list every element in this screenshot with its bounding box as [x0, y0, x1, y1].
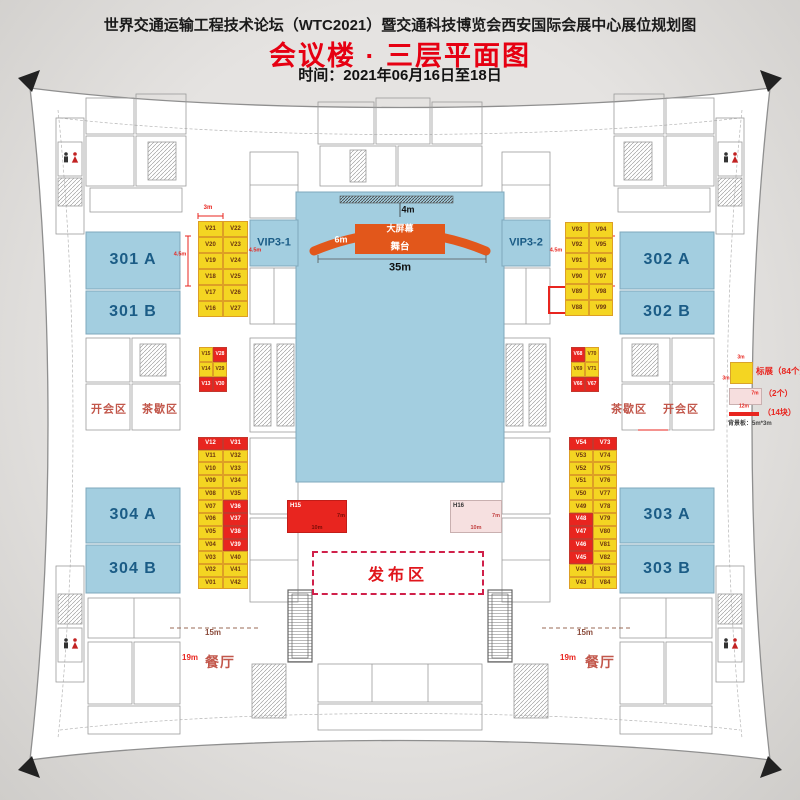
booth-V33: V33 — [223, 462, 248, 475]
booth-V83: V83 — [593, 564, 617, 577]
legend-board-note: 背景板：5m*3m — [728, 421, 772, 427]
legend-special-label: （2个） — [764, 390, 792, 398]
booth-V98: V98 — [589, 284, 613, 300]
booth-V02: V02 — [198, 564, 223, 577]
booth-V42: V42 — [223, 577, 248, 590]
booth-V45: V45 — [569, 551, 593, 564]
booth-grid-mid-right: V68V70V69V71V66V67 — [571, 347, 599, 392]
legend: 3m 3m 标展（84个） 7m 12m （2个） （14块） 背景板：5m*3… — [722, 348, 800, 432]
booth-V82: V82 — [593, 551, 617, 564]
dim-3m-top-left: 3m — [204, 205, 213, 211]
booth-V38: V38 — [223, 526, 248, 539]
legend-standard-label: 标展（84个） — [756, 367, 800, 376]
special-booth-h15: H15 7m 10m — [287, 500, 347, 533]
dim-4m: 4m — [401, 206, 414, 215]
booth-V25: V25 — [223, 269, 248, 285]
booth-V11: V11 — [198, 450, 223, 463]
booth-V44: V44 — [569, 564, 593, 577]
release-area: 发布区 — [312, 551, 484, 595]
booth-V23: V23 — [223, 237, 248, 253]
booth-V34: V34 — [223, 475, 248, 488]
release-area-label: 发布区 — [368, 561, 428, 585]
vip3-1-label: VIP3-1 — [257, 238, 291, 249]
dim-45m-right-corridor: 4.5m — [550, 248, 563, 254]
booth-V40: V40 — [223, 551, 248, 564]
booth-V13: V13 — [199, 377, 213, 392]
booth-V30: V30 — [213, 377, 227, 392]
booth-V32: V32 — [223, 450, 248, 463]
floor-plan-drawing — [0, 0, 800, 800]
dim-6m: 6m — [334, 236, 347, 245]
dim-45m-left-corridor: 4.5m — [249, 248, 262, 254]
room-303a-label: 303 A — [643, 507, 690, 523]
booth-V94: V94 — [589, 222, 613, 238]
tea-zone-label-right: 茶歇区 — [611, 405, 647, 416]
booth-V80: V80 — [593, 526, 617, 539]
booth-V05: V05 — [198, 526, 223, 539]
booth-V20: V20 — [198, 237, 223, 253]
meeting-zone-label-right: 开会区 — [663, 405, 699, 416]
booth-V24: V24 — [223, 253, 248, 269]
booth-V67: V67 — [585, 377, 599, 392]
vip3-2-label: VIP3-2 — [509, 238, 543, 249]
room-303b-label: 303 B — [643, 561, 691, 577]
booth-V01: V01 — [198, 577, 223, 590]
page-title: 世界交通运输工程技术论坛（WTC2021）暨交通科技博览会西安国际会展中心展位规… — [0, 14, 800, 35]
dim-19m-right: 19m — [560, 654, 576, 662]
booth-V14: V14 — [199, 362, 213, 377]
booth-V96: V96 — [589, 253, 613, 269]
booth-V78: V78 — [593, 500, 617, 513]
booth-V43: V43 — [569, 577, 593, 590]
booth-V16: V16 — [198, 301, 223, 317]
booth-V09: V09 — [198, 475, 223, 488]
booth-grid-bottom-right: V54V73V53V74V52V75V51V76V50V77V49V78V48V… — [569, 437, 617, 589]
booth-V71: V71 — [585, 362, 599, 377]
h15-width: 10m — [288, 525, 346, 531]
special-booth-h16: H16 7m 10m — [450, 500, 502, 533]
room-304a-label: 304 A — [109, 507, 156, 523]
booth-V91: V91 — [565, 253, 589, 269]
booth-V12: V12 — [198, 437, 223, 450]
booth-V68: V68 — [571, 347, 585, 362]
booth-V90: V90 — [565, 269, 589, 285]
booth-grid-mid-left: V15V28V14V29V13V30 — [199, 347, 227, 392]
dim-15m-left: 15m — [205, 629, 221, 637]
legend-standard-size-left: 3m — [722, 377, 729, 382]
booth-V47: V47 — [569, 526, 593, 539]
booth-V54: V54 — [569, 437, 593, 450]
booth-V69: V69 — [571, 362, 585, 377]
booth-V95: V95 — [589, 238, 613, 254]
booth-V52: V52 — [569, 462, 593, 475]
legend-standard-size-top: 3m — [737, 356, 744, 361]
tea-zone-label-left: 茶歇区 — [142, 405, 178, 416]
booth-V84: V84 — [593, 577, 617, 590]
legend-board-swatch — [729, 412, 759, 416]
booth-V37: V37 — [223, 513, 248, 526]
booth-V27: V27 — [223, 301, 248, 317]
restaurant-label-right: 餐厅 — [585, 655, 615, 669]
booth-V76: V76 — [593, 475, 617, 488]
booth-V70: V70 — [585, 347, 599, 362]
booth-V51: V51 — [569, 475, 593, 488]
booth-V04: V04 — [198, 539, 223, 552]
time-label: 时间：2021年06月16日至18日 — [0, 64, 800, 85]
booth-V48: V48 — [569, 513, 593, 526]
booth-V89: V89 — [565, 284, 589, 300]
dim-15m-right: 15m — [577, 629, 593, 637]
restaurant-label-left: 餐厅 — [205, 655, 235, 669]
dim-45m-301: 4.5m — [174, 252, 187, 258]
booth-V22: V22 — [223, 221, 248, 237]
booth-V29: V29 — [213, 362, 227, 377]
booth-V46: V46 — [569, 539, 593, 552]
booth-V66: V66 — [571, 377, 585, 392]
booth-V81: V81 — [593, 539, 617, 552]
h15-id: H15 — [290, 503, 301, 509]
booth-V99: V99 — [589, 300, 613, 316]
booth-grid-top-right: V93V94V92V95V91V96V90V97V89V98V88V99 — [565, 222, 613, 316]
booth-V28: V28 — [213, 347, 227, 362]
booth-V10: V10 — [198, 462, 223, 475]
booth-V92: V92 — [565, 238, 589, 254]
booth-V15: V15 — [199, 347, 213, 362]
stage-label: 舞台 — [390, 242, 409, 252]
booth-V41: V41 — [223, 564, 248, 577]
legend-special-w: 12m — [739, 405, 749, 410]
booth-V17: V17 — [198, 285, 223, 301]
legend-standard-swatch — [730, 362, 753, 384]
room-301a-label: 301 A — [109, 252, 156, 268]
booth-V06: V06 — [198, 513, 223, 526]
booth-V50: V50 — [569, 488, 593, 501]
booth-V07: V07 — [198, 500, 223, 513]
booth-V26: V26 — [223, 285, 248, 301]
booth-V74: V74 — [593, 450, 617, 463]
h16-id: H16 — [453, 503, 464, 509]
booth-V49: V49 — [569, 500, 593, 513]
booth-V03: V03 — [198, 551, 223, 564]
h15-height: 7m — [337, 513, 345, 519]
floor-plan-canvas: 世界交通运输工程技术论坛（WTC2021）暨交通科技博览会西安国际会展中心展位规… — [0, 0, 800, 800]
screen-label: 大屏幕 — [386, 225, 413, 234]
dim-19m-left: 19m — [182, 654, 198, 662]
legend-special-h: 7m — [751, 392, 758, 397]
booth-V93: V93 — [565, 222, 589, 238]
room-302a-label: 302 A — [643, 252, 690, 268]
booth-grid-top-left: V21V22V20V23V19V24V18V25V17V26V16V27 — [198, 221, 248, 317]
booth-V88: V88 — [565, 300, 589, 316]
booth-grid-bottom-left: V12V31V11V32V10V33V09V34V08V35V07V36V06V… — [198, 437, 248, 589]
room-302b-label: 302 B — [643, 304, 691, 320]
booth-V19: V19 — [198, 253, 223, 269]
booth-V18: V18 — [198, 269, 223, 285]
booth-V21: V21 — [198, 221, 223, 237]
booth-V36: V36 — [223, 500, 248, 513]
dim-35m: 35m — [389, 263, 411, 274]
booth-V79: V79 — [593, 513, 617, 526]
booth-V77: V77 — [593, 488, 617, 501]
booth-V08: V08 — [198, 488, 223, 501]
legend-board-label: （14块） — [763, 409, 796, 417]
h16-height: 7m — [492, 513, 500, 519]
booth-V75: V75 — [593, 462, 617, 475]
booth-V31: V31 — [223, 437, 248, 450]
booth-V35: V35 — [223, 488, 248, 501]
meeting-zone-label-left: 开会区 — [91, 405, 127, 416]
booth-V97: V97 — [589, 269, 613, 285]
booth-V53: V53 — [569, 450, 593, 463]
booth-V39: V39 — [223, 539, 248, 552]
room-304b-label: 304 B — [109, 561, 157, 577]
booth-V73: V73 — [593, 437, 617, 450]
h16-width: 10m — [451, 525, 501, 531]
room-301b-label: 301 B — [109, 304, 157, 320]
